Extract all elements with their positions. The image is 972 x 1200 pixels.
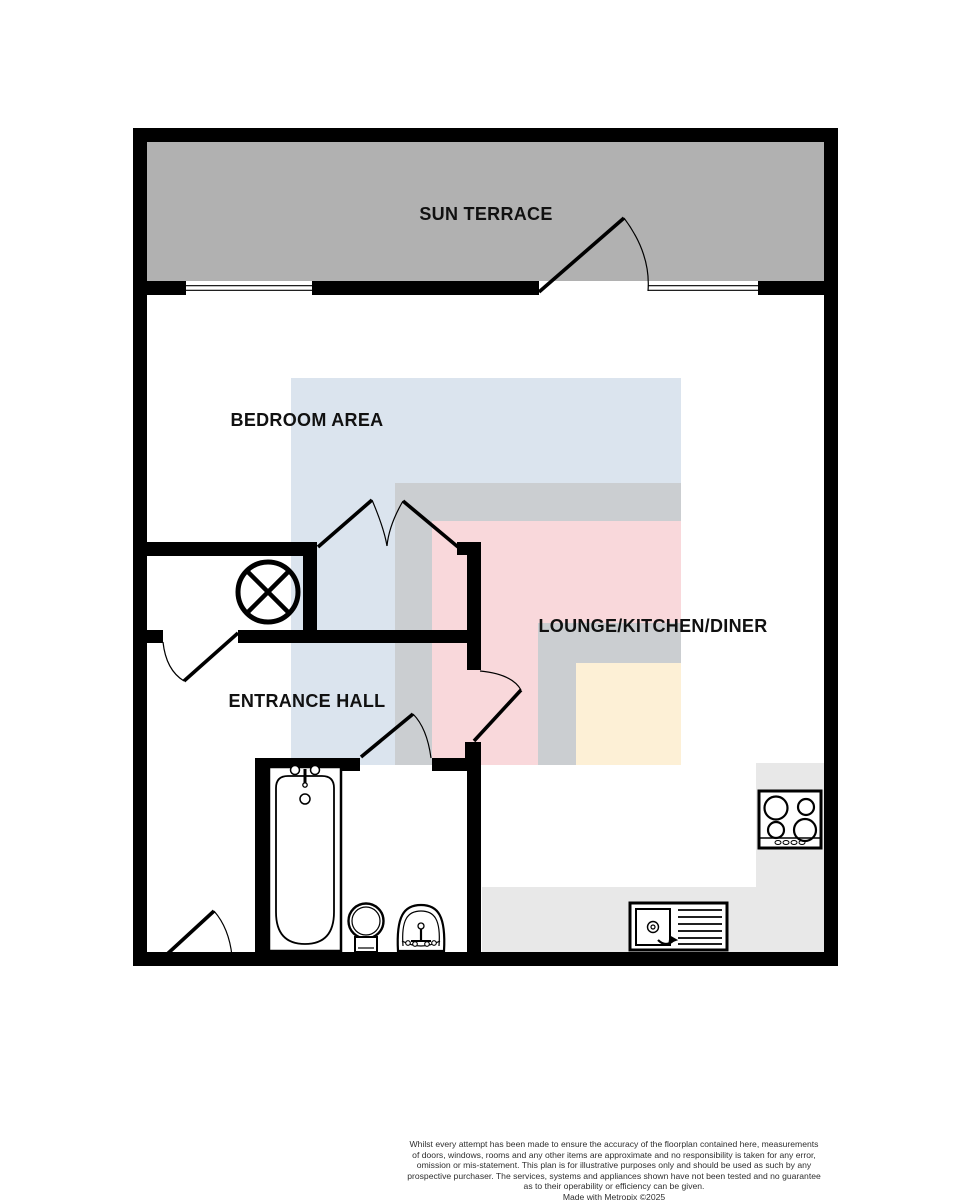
disclaimer-line: as to their operability or efficiency ca… — [368, 1181, 860, 1192]
wall-segment — [255, 758, 268, 952]
wall-segment — [467, 758, 481, 952]
room-label-bedroom-area: BEDROOM AREA — [231, 410, 384, 430]
metropix-credit: Made with Metropix ©2025 — [368, 1192, 860, 1200]
wall-segment — [133, 952, 838, 966]
wall-segment — [133, 128, 838, 142]
wall-segment — [465, 742, 481, 760]
window — [648, 281, 758, 295]
hob-icon — [759, 791, 821, 848]
bath-icon — [269, 766, 341, 952]
disclaimer-line: Whilst every attempt has been made to en… — [368, 1139, 860, 1150]
wall-segment — [303, 542, 317, 643]
floorplan-page: SUN TERRACE BEDROOM AREA LOUNGE/KITCHEN/… — [0, 0, 972, 1200]
room-label-sun-terrace: SUN TERRACE — [419, 204, 552, 224]
wall-segment — [312, 281, 539, 295]
disclaimer-line: prospective purchaser. The services, sys… — [368, 1171, 860, 1182]
diner-zone-overlay — [576, 663, 681, 765]
floorplan-canvas: SUN TERRACE BEDROOM AREA LOUNGE/KITCHEN/… — [0, 0, 972, 1200]
wall-segment — [467, 542, 481, 670]
wall-segment — [147, 542, 317, 556]
basin-icon — [398, 905, 445, 951]
wall-segment — [824, 128, 838, 966]
wall-segment — [133, 128, 147, 966]
room-label-lounge-kitchen-diner: LOUNGE/KITCHEN/DINER — [538, 616, 767, 636]
kitchen-sink-drainer-icon — [630, 903, 727, 950]
toilet-icon — [349, 904, 384, 953]
wall-segment — [133, 281, 186, 295]
disclaimer-line: omission or mis-statement. This plan is … — [368, 1160, 860, 1171]
wall-segment — [147, 630, 163, 643]
disclaimer-line: of doors, windows, rooms and any other i… — [368, 1150, 860, 1161]
cupboard-door — [163, 633, 238, 681]
window — [186, 281, 312, 295]
wall-segment — [238, 630, 467, 643]
appliance-circle-cross-icon — [238, 562, 298, 622]
entrance-door — [164, 911, 232, 957]
room-label-entrance-hall: ENTRANCE HALL — [229, 691, 386, 711]
disclaimer: Whilst every attempt has been made to en… — [368, 1139, 860, 1200]
wall-segment — [758, 281, 838, 295]
